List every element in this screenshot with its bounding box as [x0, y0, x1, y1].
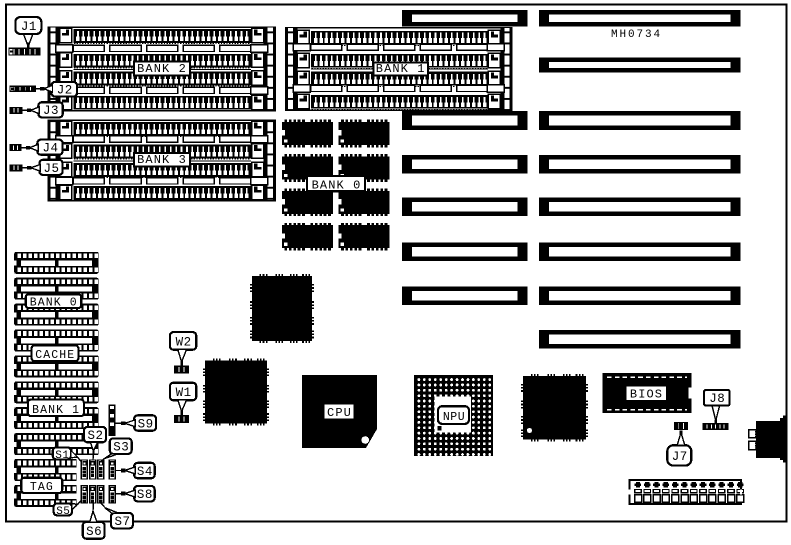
svg-text:J4: J4	[42, 142, 58, 156]
svg-text:J8: J8	[709, 392, 725, 406]
svg-text:S3: S3	[113, 441, 129, 455]
svg-text:J7: J7	[672, 450, 688, 464]
svg-text:S9: S9	[138, 417, 154, 431]
svg-text:BANK 0: BANK 0	[30, 296, 78, 309]
svg-text:W1: W1	[176, 386, 192, 400]
svg-text:BANK 3: BANK 3	[137, 153, 187, 167]
svg-text:MH0734: MH0734	[611, 29, 662, 41]
svg-text:S5: S5	[56, 506, 70, 518]
svg-text:BIOS: BIOS	[630, 388, 663, 402]
svg-text:S4: S4	[137, 465, 153, 479]
svg-text:S6: S6	[86, 525, 102, 539]
svg-text:S2: S2	[87, 429, 103, 443]
svg-text:W2: W2	[176, 335, 192, 349]
svg-text:J1: J1	[21, 20, 37, 34]
svg-text:BANK 1: BANK 1	[376, 62, 426, 76]
svg-text:NPU: NPU	[443, 411, 465, 424]
svg-text:J3: J3	[43, 104, 59, 118]
svg-text:J5: J5	[43, 162, 59, 176]
svg-text:TAG: TAG	[30, 481, 54, 494]
svg-text:BANK 2: BANK 2	[137, 62, 187, 76]
svg-text:S1: S1	[55, 450, 69, 462]
svg-text:CPU: CPU	[327, 406, 352, 420]
svg-text:CACHE: CACHE	[35, 349, 75, 362]
svg-text:J2: J2	[57, 84, 73, 98]
svg-text:BANK 1: BANK 1	[32, 404, 80, 417]
svg-text:S8: S8	[137, 488, 153, 502]
svg-text:BANK 0: BANK 0	[312, 178, 362, 192]
svg-text:S7: S7	[114, 515, 130, 529]
